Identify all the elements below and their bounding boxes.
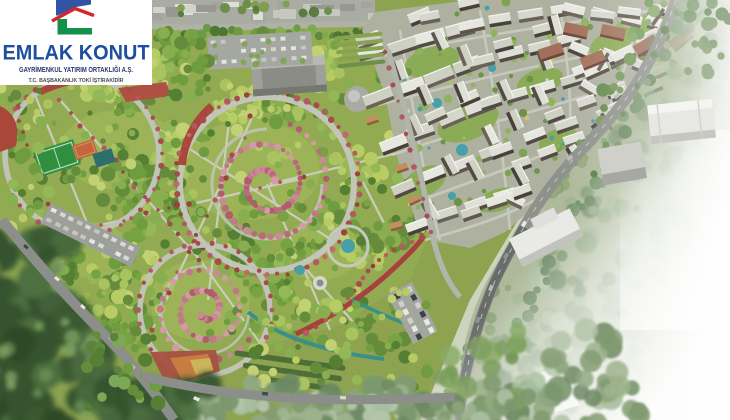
svg-text:GAYRİMENKUL YATIRIM ORTAKLIĞI: GAYRİMENKUL YATIRIM ORTAKLIĞI A.Ş. [19,65,133,74]
svg-text:T.C. BAŞBAKANLIK TOKİ İŞTİRAKİ: T.C. BAŞBAKANLIK TOKİ İŞTİRAKİDİR [29,77,124,84]
svg-text:EMLAK KONUT: EMLAK KONUT [3,42,150,65]
